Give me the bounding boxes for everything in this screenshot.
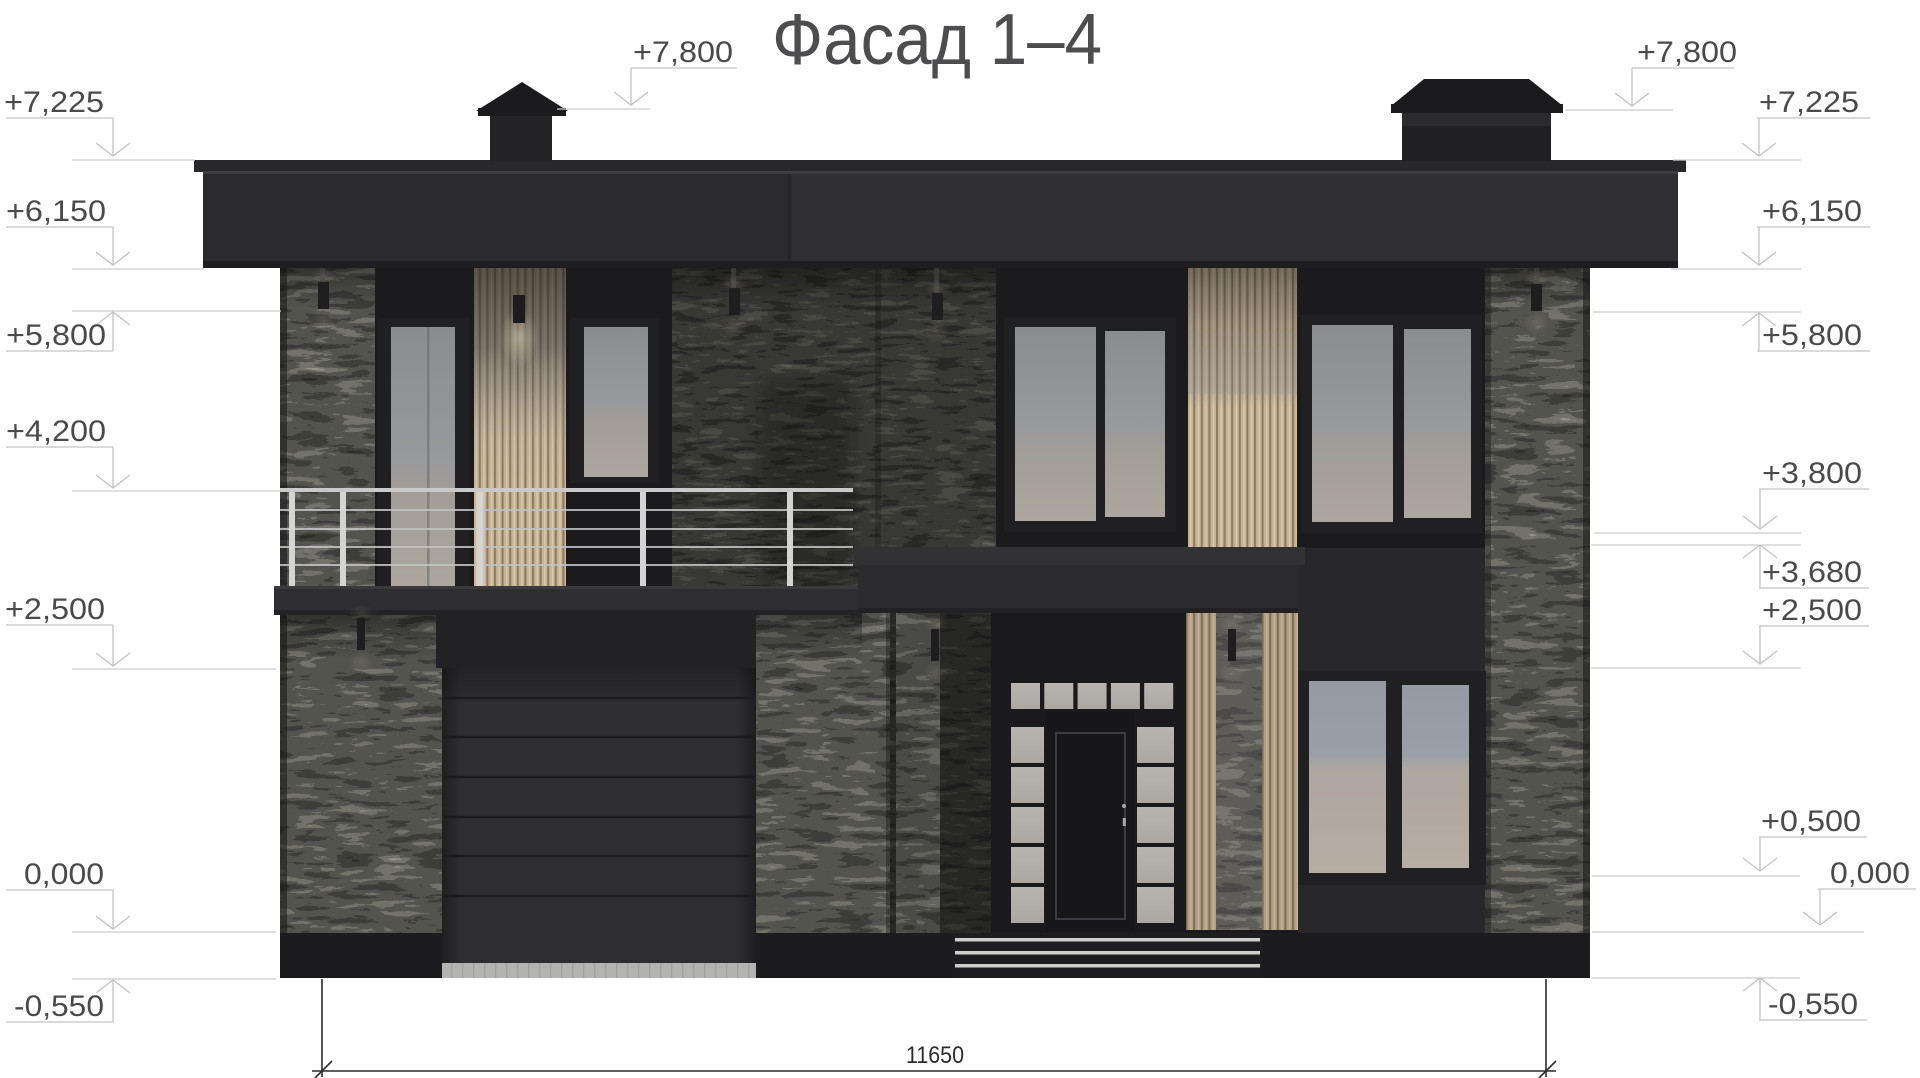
svg-text:+4,200: +4,200 — [6, 415, 106, 448]
svg-text:+3,800: +3,800 — [1762, 457, 1862, 490]
svg-text:+5,800: +5,800 — [6, 319, 106, 352]
svg-text:+2,500: +2,500 — [1762, 594, 1862, 627]
svg-text:+7,225: +7,225 — [4, 86, 104, 119]
svg-text:+7,225: +7,225 — [1759, 86, 1859, 119]
svg-text:0,000: 0,000 — [24, 858, 104, 891]
svg-text:+2,500: +2,500 — [5, 593, 105, 626]
svg-text:-0,550: -0,550 — [14, 990, 104, 1023]
svg-text:Фасад 1–4: Фасад 1–4 — [772, 0, 1102, 80]
svg-text:+7,800: +7,800 — [633, 36, 733, 69]
svg-text:+6,150: +6,150 — [6, 195, 106, 228]
svg-text:-0,550: -0,550 — [1768, 988, 1858, 1021]
svg-text:0,000: 0,000 — [1830, 857, 1910, 890]
svg-text:+7,800: +7,800 — [1637, 36, 1737, 69]
svg-text:11650: 11650 — [906, 1042, 964, 1069]
svg-text:+5,800: +5,800 — [1762, 319, 1862, 352]
svg-text:+3,680: +3,680 — [1762, 556, 1862, 589]
svg-text:+6,150: +6,150 — [1762, 195, 1862, 228]
svg-text:+0,500: +0,500 — [1761, 805, 1861, 838]
